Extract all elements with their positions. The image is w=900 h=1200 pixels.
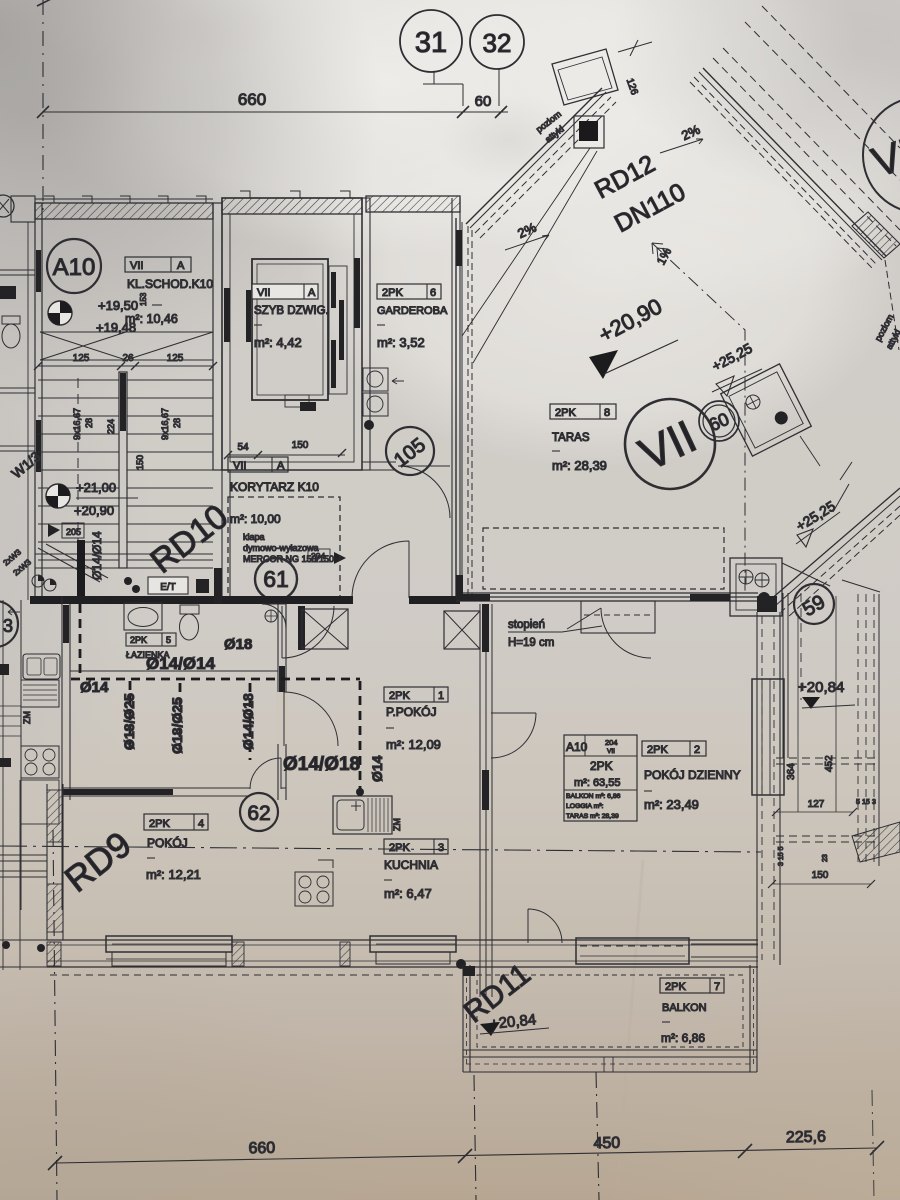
svg-text:m²: 12,09: m²: 12,09 [386,737,441,752]
svg-text:Ø14/Ø18: Ø14/Ø18 [240,693,256,750]
svg-text:A: A [308,287,316,299]
svg-text:BALKON m²: 6,86: BALKON m²: 6,86 [566,793,621,800]
svg-text:m²: 28,39: m²: 28,39 [552,458,607,473]
svg-text:3 15 5: 3 15 5 [778,846,785,866]
svg-text:153: 153 [139,292,148,306]
svg-text:KORYTARZ K10: KORYTARZ K10 [230,480,319,494]
svg-text:125: 125 [167,353,184,364]
svg-text:32: 32 [483,28,512,58]
svg-text:m²: 23,49: m²: 23,49 [644,797,699,812]
svg-text:4: 4 [198,818,204,830]
svg-text:VII: VII [130,260,143,272]
svg-text:dymowo-wyłazowa: dymowo-wyłazowa [243,543,319,553]
svg-text:2PK: 2PK [665,981,686,993]
svg-text:7: 7 [714,981,720,993]
svg-text:P.POKÓJ: P.POKÓJ [386,704,436,719]
svg-text:m²: 6,47: m²: 6,47 [384,886,432,901]
svg-text:2PK: 2PK [149,818,170,830]
svg-text:2: 2 [694,744,700,756]
svg-text:Ø18: Ø18 [224,636,252,653]
svg-text:660: 660 [238,90,266,109]
svg-text:ZM: ZM [392,818,402,831]
svg-text:23: 23 [822,854,829,862]
svg-text:125: 125 [73,353,90,364]
svg-text:Ø18/Ø25: Ø18/Ø25 [169,697,185,754]
svg-text:TARAS: TARAS [552,432,590,444]
svg-text:m²: 3,52: m²: 3,52 [377,335,425,350]
svg-text:+21,00: +21,00 [76,480,116,495]
svg-text:klapa: klapa [243,532,265,542]
svg-text:31: 31 [415,27,447,59]
svg-text:9x16,67: 9x16,67 [160,408,170,440]
svg-text:A: A [277,460,285,472]
svg-text:H=19 cm: H=19 cm [508,637,554,649]
svg-text:stopień: stopień [508,619,545,631]
svg-text:Ø14/Ø14: Ø14/Ø14 [146,654,216,673]
svg-text:205: 205 [66,527,81,537]
svg-text:2PK: 2PK [389,842,410,854]
svg-text:Ø14: Ø14 [369,755,385,782]
svg-text:3: 3 [3,616,13,636]
svg-text:2PK: 2PK [647,744,668,756]
svg-text:225,6: 225,6 [786,1129,826,1147]
svg-text:2PK: 2PK [590,759,613,773]
svg-text:KUCHNIA: KUCHNIA [384,858,438,872]
svg-text:8: 8 [604,407,610,419]
svg-text:28: 28 [84,418,94,428]
svg-text:+19,48: +19,48 [96,320,136,335]
svg-text:127: 127 [808,799,825,810]
svg-text:150: 150 [292,440,309,451]
svg-text:9x16,67: 9x16,67 [72,408,82,440]
svg-text:A10: A10 [53,254,96,281]
svg-text:54: 54 [237,442,249,453]
svg-text:KL.SCHOD.K10: KL.SCHOD.K10 [127,277,213,291]
svg-text:+20,84: +20,84 [798,679,844,696]
svg-text:A10: A10 [566,740,588,754]
svg-text:POKÓJ DZIENNY: POKÓJ DZIENNY [644,767,741,782]
svg-text:150: 150 [135,455,145,470]
svg-text:3: 3 [438,842,444,854]
svg-text:m²: 6,86: m²: 6,86 [661,1031,705,1045]
svg-text:BALKON: BALKON [662,1002,707,1014]
svg-text:Ø14: Ø14 [80,679,109,696]
svg-text:1: 1 [438,690,444,702]
svg-text:62: 62 [247,802,270,825]
svg-text:60: 60 [475,93,492,110]
svg-text:Ø14/Ø18: Ø14/Ø18 [283,754,360,775]
svg-text:204: 204 [311,551,325,561]
svg-text:E/T: E/T [160,582,176,593]
svg-text:m²: 12,21: m²: 12,21 [146,867,201,882]
svg-text:6: 6 [430,287,436,299]
svg-text:m²: 4,42: m²: 4,42 [254,335,302,350]
svg-text:452: 452 [824,755,835,772]
svg-text:LOGGIA m²:: LOGGIA m²: [566,803,604,810]
svg-text:204: 204 [605,738,618,747]
svg-text:VII: VII [233,460,246,472]
svg-text:VII: VII [607,748,615,755]
svg-text:GARDEROBA: GARDEROBA [377,305,448,317]
svg-text:Ø18/Ø25: Ø18/Ø25 [121,693,137,750]
svg-text:224: 224 [106,419,116,434]
svg-text:150: 150 [812,870,829,881]
svg-text:ZM: ZM [22,711,32,724]
svg-text:61: 61 [263,566,289,592]
svg-text:Ø14/Ø14: Ø14/Ø14 [90,531,104,580]
svg-text:A: A [177,260,185,272]
svg-text:VII: VII [257,287,270,299]
svg-text:364: 364 [786,763,797,780]
svg-text:2PK: 2PK [389,690,410,702]
svg-text:660: 660 [248,1140,275,1157]
svg-text:m²: 10,00: m²: 10,00 [230,512,281,526]
svg-text:+19,50: +19,50 [98,298,138,313]
svg-text:m²: 63,55: m²: 63,55 [574,777,620,789]
svg-text:2PK: 2PK [555,407,576,419]
svg-text:5: 5 [166,635,171,645]
svg-text:TARAS m²: 28,39: TARAS m²: 28,39 [566,813,619,820]
svg-text:SZYB DZWIG.: SZYB DZWIG. [254,305,329,317]
svg-text:2PK: 2PK [382,287,403,299]
svg-text:+20,90: +20,90 [74,503,114,518]
svg-text:28: 28 [172,418,182,428]
svg-text:2PK: 2PK [130,635,147,645]
